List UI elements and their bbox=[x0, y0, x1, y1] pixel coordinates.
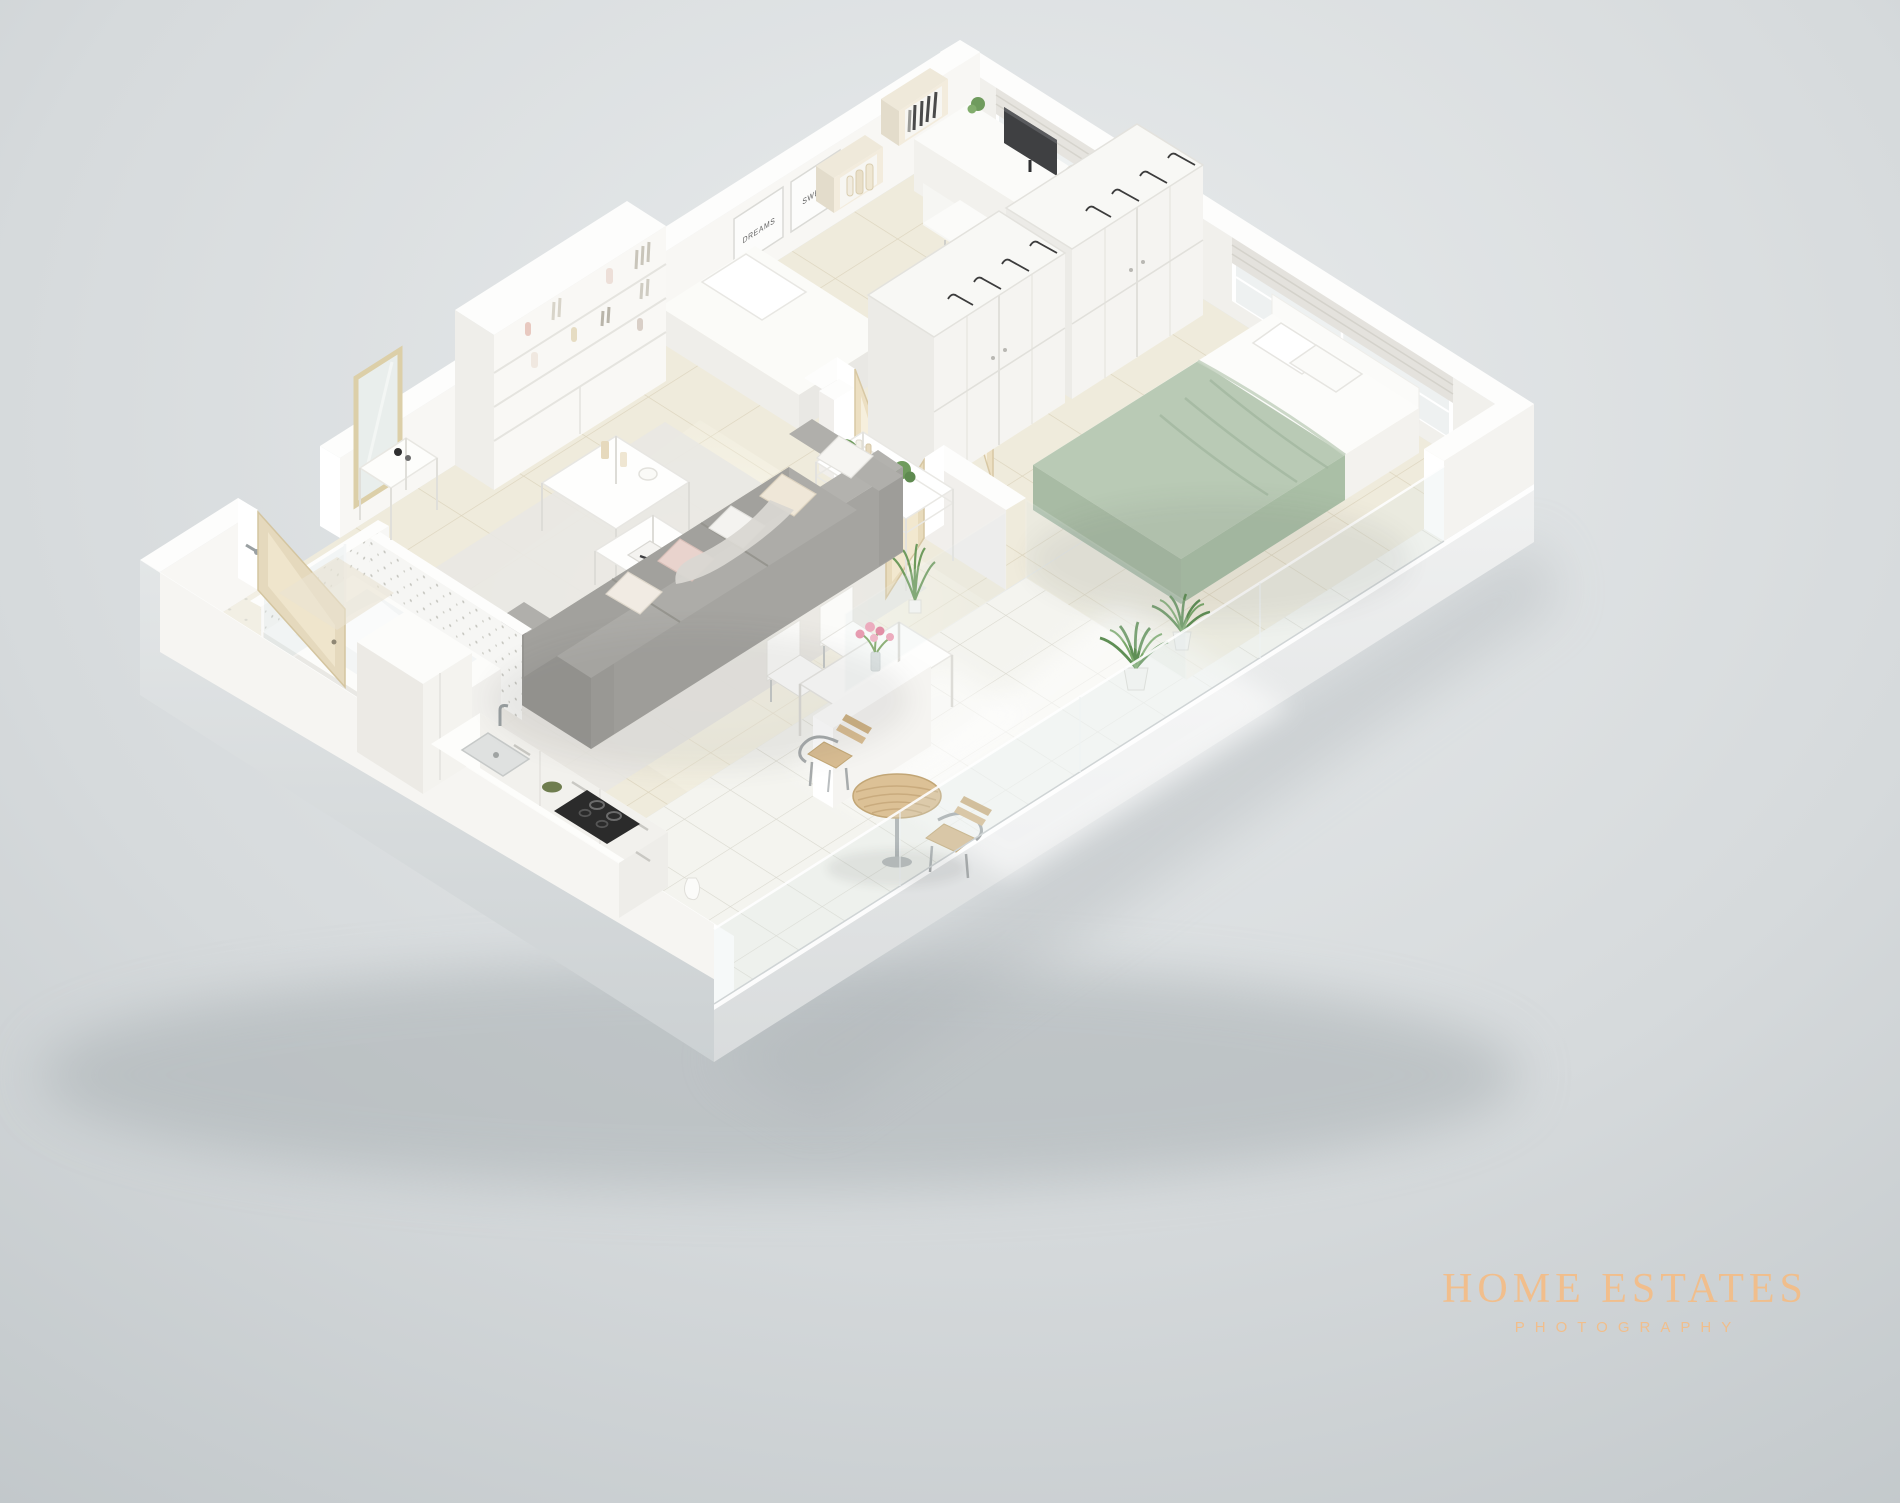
watermark-title: HOME ESTATES bbox=[1442, 1266, 1808, 1312]
green-bowl bbox=[542, 782, 562, 793]
candle bbox=[601, 441, 609, 459]
floor-jug bbox=[685, 878, 700, 900]
vase bbox=[639, 468, 657, 480]
watermark-subtitle: PHOTOGRAPHY bbox=[1515, 1319, 1741, 1336]
console-decor bbox=[394, 448, 402, 456]
floor-plan-render: SWEET DREAMS bbox=[0, 0, 1900, 1503]
apartment-3d-floor-plan-image: SWEET DREAMS bbox=[0, 0, 1900, 1503]
